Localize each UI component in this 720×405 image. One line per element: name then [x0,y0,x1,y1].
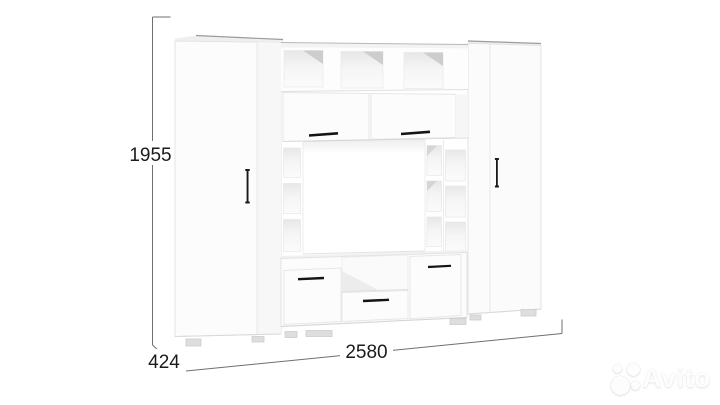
depth-dimension-label: 424 [148,352,180,373]
logo-circle [627,363,640,376]
logo-circle [611,376,630,395]
stand-right-door-handle [428,266,451,267]
furniture-drawing: 1955 424 2580 [0,0,720,405]
stand-drawer [342,291,408,322]
width-dimension-label: 2580 [345,342,387,363]
left-cabinet [175,36,283,337]
stand-drawer-handle [363,300,389,301]
tv-stand [281,250,467,327]
shelf-opening [284,148,301,178]
avito-logo-icon [609,359,645,399]
top-bridge-shelves [281,43,468,93]
shelf-opening [284,184,301,214]
wall-unit [175,36,541,347]
shelf-opening [446,186,466,217]
watermark-brand-text: Avito [642,363,711,394]
avito-watermark: Avito [609,359,709,401]
upper-cabinet-doors [283,93,468,142]
shelf-opening [446,150,466,181]
shelf-opening [427,217,442,247]
shelf-opening [446,222,466,251]
foot [521,310,536,317]
logo-circle [613,364,622,373]
left-shelf-column [284,148,301,252]
foot [470,315,481,320]
foot [186,339,201,346]
product-image: 1955 424 2580 Avito [0,0,720,405]
height-dimension-label: 1955 [129,145,171,166]
foot [285,332,297,338]
right-shelf-columns [427,140,466,251]
foot [306,331,332,337]
logo-circle [631,381,640,390]
shelf-opening [284,220,301,252]
stand-left-door [284,268,341,325]
right-cabinet-door [468,43,541,314]
foot [450,319,466,325]
right-cabinet [468,41,541,314]
stand-left-door-handle [298,278,324,279]
stand-right-door [410,255,461,319]
tv-niche [303,139,425,254]
foot [252,337,264,343]
